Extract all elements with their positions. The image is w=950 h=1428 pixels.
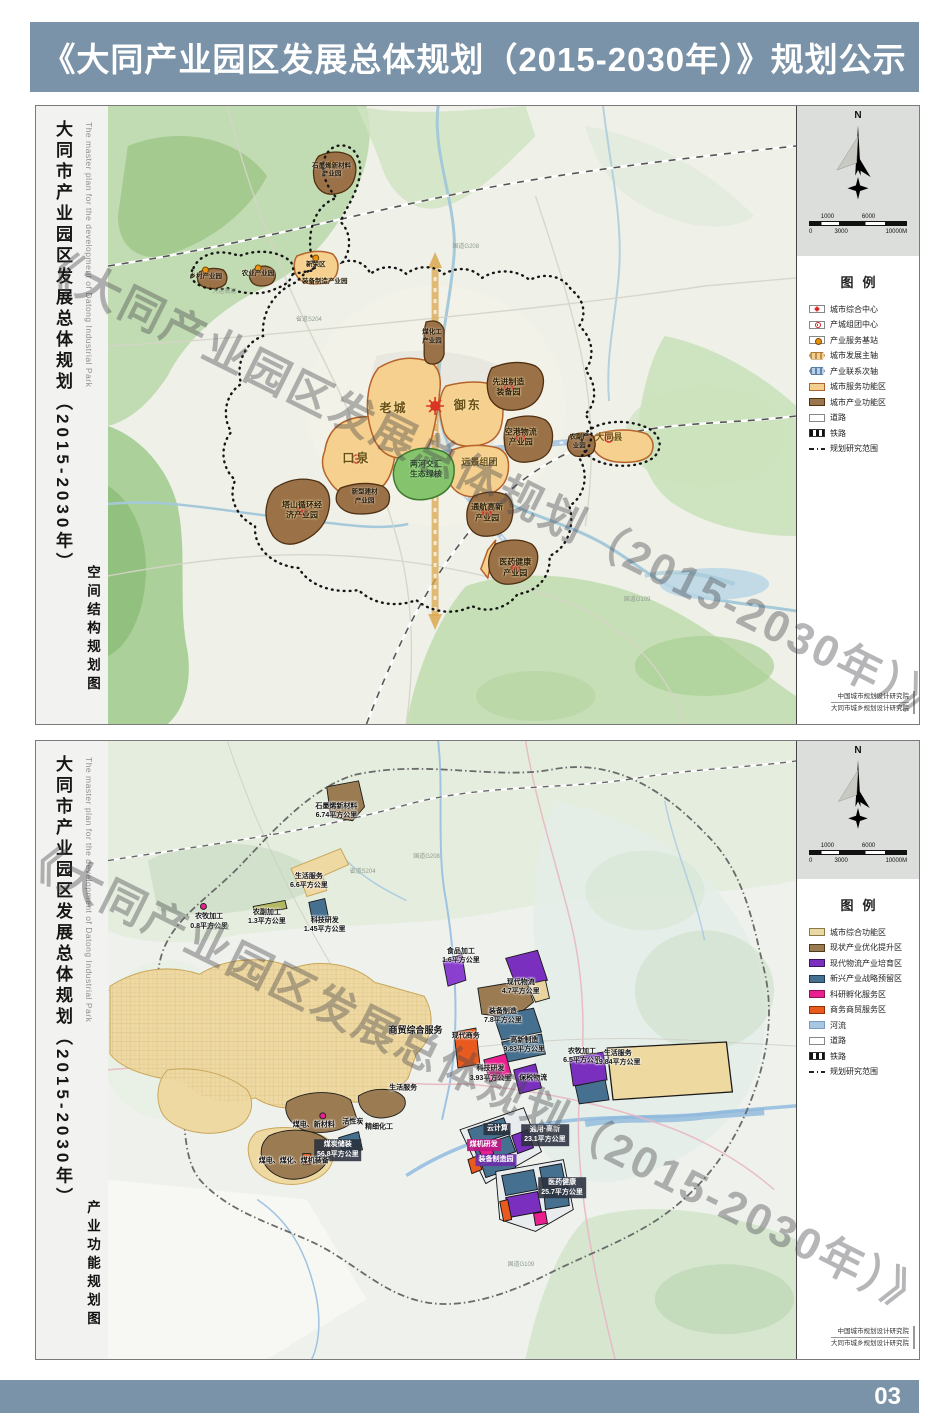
panel2-legend-strip: N 10006000 0300010000M 图例 (796, 741, 919, 1359)
industrial-function-map-graphic (108, 741, 796, 1359)
legend-item: 河流 (809, 1020, 915, 1031)
legend-list: 城市综合中心 产城组团中心 产业服务基站 城市发展主轴 (797, 304, 919, 455)
panel1-legend-strip: N 10006000 0300010000M 图例 (796, 106, 919, 724)
credits-block: 中国城市规划设计研究院大同市城乡规划设计研究院 (831, 691, 915, 714)
scale-tick-label: 1000 (821, 214, 834, 220)
credit-line: 大同市城乡规划设计研究院 (831, 1338, 909, 1349)
legend-item-label: 产业联系次轴 (830, 366, 878, 377)
scale-tick-label: 0 (809, 858, 812, 864)
scale-tick-label: 1000 (821, 843, 834, 849)
footer-bar: 03 (0, 1380, 919, 1413)
legend-item-label: 城市产业功能区 (830, 397, 886, 408)
page-number: 03 (874, 1383, 901, 1410)
legend-item-label: 城市综合功能区 (830, 927, 886, 938)
scale-bar: 10006000 0300010000M (809, 843, 907, 867)
compass-scale-box: N 10006000 0300010000M (797, 741, 919, 879)
legend-item-label: 铁路 (830, 428, 846, 439)
legend-swatch-icon (809, 975, 825, 983)
legend-swatch-icon (809, 305, 825, 313)
legend-item-label: 道路 (830, 1035, 846, 1046)
scale-tick-label: 6000 (862, 843, 875, 849)
north-label: N (797, 110, 919, 121)
legend-swatch-icon (809, 321, 825, 329)
map-type-label: 产业功能规划图 (82, 1200, 102, 1330)
legend-item-label: 现代物流产业培育区 (830, 958, 902, 969)
legend-item: 城市发展主轴 (809, 350, 915, 361)
legend-item: 科研孵化服务区 (809, 989, 915, 1000)
legend-item-label: 城市综合中心 (830, 304, 878, 315)
credit-line: 大同市城乡规划设计研究院 (831, 703, 909, 714)
legend-item-label: 河流 (830, 1020, 846, 1031)
legend-swatch-icon (809, 352, 825, 360)
legend-item: 城市综合功能区 (809, 927, 915, 938)
sidebar-title-en: The master plan for the development of D… (84, 757, 94, 1227)
legend-item: 铁路 (809, 1051, 915, 1062)
legend-swatch-icon (809, 990, 825, 998)
legend-item: 产业联系次轴 (809, 366, 915, 377)
compass-icon (823, 121, 893, 205)
panel2-sidebar: 大同市产业园区发展总体规划（2015-2030年） The master pla… (36, 741, 108, 1359)
legend-swatch-icon (809, 448, 825, 450)
legend-item-label: 商务商贸服务区 (830, 1004, 886, 1015)
panel-industrial-function: 大同市产业园区发展总体规划（2015-2030年） The master pla… (35, 740, 920, 1360)
panel-spatial-structure: 大同市产业园区发展总体规划（2015-2030年） The master pla… (35, 105, 920, 725)
legend-item: 新兴产业战略预留区 (809, 973, 915, 984)
legend-item-label: 城市发展主轴 (830, 350, 878, 361)
credit-line: 中国城市规划设计研究院 (831, 691, 909, 703)
poster-page: 《大同产业园区发展总体规划（2015-2030年）》规划公示 大同市产业园区发展… (0, 0, 950, 1428)
legend-item: 产城组团中心 (809, 319, 915, 330)
legend-swatch-icon (809, 928, 825, 936)
legend-item: 道路 (809, 412, 915, 423)
credits-block: 中国城市规划设计研究院大同市城乡规划设计研究院 (831, 1326, 915, 1349)
legend-item: 现代物流产业培育区 (809, 958, 915, 969)
legend-item: 铁路 (809, 428, 915, 439)
legend-item-label: 规划研究范围 (830, 1066, 878, 1077)
compass-icon (825, 756, 891, 834)
scale-tick-label: 10000M (885, 858, 907, 864)
legend-swatch-icon (809, 1021, 825, 1029)
sidebar-title-cn: 大同市产业园区发展总体规划（2015-2030年） (50, 755, 75, 1315)
sidebar-title-cn: 大同市产业园区发展总体规划（2015-2030年） (50, 120, 75, 680)
legend-item: 规划研究范围 (809, 443, 915, 454)
legend-item-label: 产城组团中心 (830, 319, 878, 330)
legend-item-label: 铁路 (830, 1051, 846, 1062)
legend-item: 城市产业功能区 (809, 397, 915, 408)
scale-tick-label: 6000 (862, 214, 875, 220)
scale-bar: 10006000 0300010000M (809, 214, 907, 238)
legend-item: 城市服务功能区 (809, 381, 915, 392)
legend-item-label: 科研孵化服务区 (830, 989, 886, 1000)
legend-item-label: 城市服务功能区 (830, 381, 886, 392)
scale-tick-label: 3000 (834, 229, 847, 235)
legend-title: 图例 (797, 256, 919, 299)
map-type-label: 空间结构规划图 (82, 565, 102, 695)
legend-swatch-icon (809, 1071, 825, 1073)
scale-bar-graphic (809, 850, 907, 855)
legend-swatch-icon (809, 336, 825, 344)
spatial-structure-map: 老城 御东 口泉 远景组团 两河交汇 生态绿核 先进制造 装备园 空港物流 产业… (108, 106, 796, 724)
credit-line: 中国城市规划设计研究院 (831, 1326, 909, 1338)
eco-green-core-zone (393, 448, 454, 500)
scale-tick-label: 3000 (834, 858, 847, 864)
legend-item-label: 新兴产业战略预留区 (830, 973, 902, 984)
industrial-function-map: 石墨烯新材料 6.74平方公里 生活服务 6.6平方公里 农牧加工 0.8平方公… (108, 741, 796, 1359)
legend-item: 现状产业优化提升区 (809, 942, 915, 953)
legend-swatch-icon (809, 944, 825, 952)
legend-item: 规划研究范围 (809, 1066, 915, 1077)
legend-swatch-icon (809, 383, 825, 391)
north-label: N (797, 745, 919, 756)
legend-item-label: 道路 (830, 412, 846, 423)
panel1-sidebar: 大同市产业园区发展总体规划（2015-2030年） The master pla… (36, 106, 108, 724)
legend-list: 城市综合功能区 现状产业优化提升区 现代物流产业培育区 新兴产业 (797, 927, 919, 1078)
legend-swatch-icon (809, 1052, 825, 1060)
legend-item: 城市综合中心 (809, 304, 915, 315)
legend-swatch-icon (809, 1037, 825, 1045)
header-bar: 《大同产业园区发展总体规划（2015-2030年）》规划公示 (30, 22, 919, 92)
legend-item: 产业服务基站 (809, 335, 915, 346)
scale-bar-graphic (809, 221, 907, 226)
scale-tick-label: 10000M (885, 229, 907, 235)
legend-swatch-icon (809, 959, 825, 967)
sidebar-title-en: The master plan for the development of D… (84, 122, 94, 592)
legend-swatch-icon (809, 367, 825, 375)
legend-swatch-icon (809, 1006, 825, 1014)
page-title: 《大同产业园区发展总体规划（2015-2030年）》规划公示 (42, 33, 906, 81)
legend-item: 商务商贸服务区 (809, 1004, 915, 1015)
spatial-structure-map-graphic (108, 106, 796, 724)
legend-swatch-icon (809, 398, 825, 406)
legend-swatch-icon (809, 429, 825, 437)
legend-title: 图例 (797, 879, 919, 922)
legend-item-label: 规划研究范围 (830, 443, 878, 454)
legend-item-label: 现状产业优化提升区 (830, 942, 902, 953)
compass-scale-box: N 10006000 0300010000M (797, 106, 919, 256)
scale-tick-label: 0 (809, 229, 812, 235)
legend-swatch-icon (809, 414, 825, 422)
legend-item-label: 产业服务基站 (830, 335, 878, 346)
legend-item: 道路 (809, 1035, 915, 1046)
